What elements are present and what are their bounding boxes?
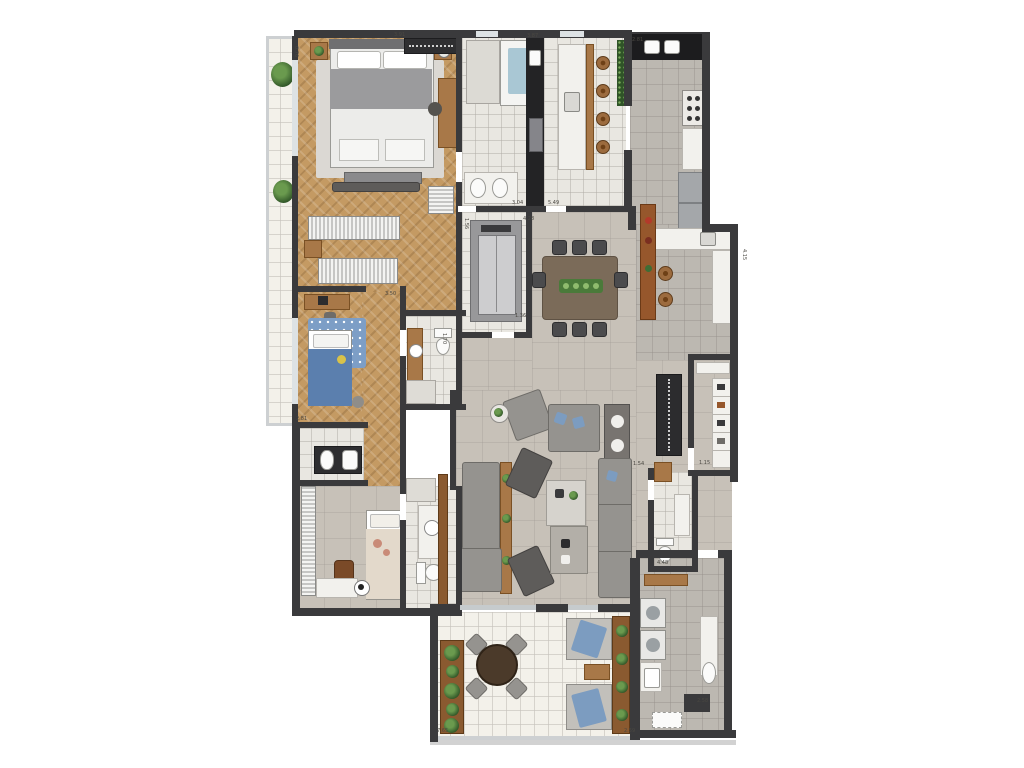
door-opening	[400, 330, 406, 356]
bedroom3-wardrobe	[301, 486, 316, 596]
bar-panel	[529, 118, 543, 152]
island-wood-edge	[586, 44, 594, 170]
bed-cushion	[385, 139, 425, 161]
closet-dresser	[304, 240, 322, 258]
bedroom3-bed	[366, 510, 402, 600]
wall	[294, 286, 366, 292]
planter-plant	[616, 709, 628, 721]
bed-throw	[330, 69, 432, 109]
laundry-mat	[652, 712, 682, 728]
balcony-outer-edge	[266, 36, 269, 426]
wall	[526, 212, 532, 338]
kids-cushion-yellow	[337, 355, 346, 364]
bar-stool	[596, 56, 610, 70]
dimension-label: 5.49	[548, 200, 559, 206]
bedroom3-desk	[316, 578, 358, 598]
dimension-label: 7.65	[437, 728, 448, 734]
wall	[648, 566, 698, 572]
planter-plant	[446, 665, 459, 678]
bath2-shower	[406, 380, 436, 404]
master-basin	[492, 178, 508, 198]
elevator-cab-door	[478, 235, 516, 315]
coffee-table-plant	[569, 491, 578, 500]
wall	[456, 486, 462, 612]
terrace-slider-glass	[460, 605, 536, 610]
door-opening	[458, 206, 476, 212]
master-basin	[470, 178, 486, 198]
buffet-bar	[640, 204, 656, 320]
daybed-towel	[571, 619, 608, 658]
door-opening	[546, 206, 566, 212]
pantry-item	[717, 420, 725, 426]
wall	[636, 550, 698, 558]
wall	[688, 360, 694, 448]
wardrobe-top-right	[404, 38, 458, 54]
burner	[687, 116, 692, 121]
speaker	[611, 439, 624, 452]
bedroom3-pillow	[370, 514, 400, 528]
bathbottom-wood-panel	[438, 474, 448, 608]
dimension-label: 1.54	[633, 461, 644, 467]
wall	[702, 32, 710, 230]
entry-console	[654, 462, 672, 482]
sofa-pillow-blue	[572, 416, 585, 429]
shelf-line	[713, 396, 730, 397]
daybed-side-table	[584, 664, 610, 680]
bedroom-desk	[438, 78, 458, 148]
wall	[624, 150, 632, 212]
bar-sink	[529, 50, 541, 66]
wall	[400, 286, 406, 488]
bedroom3-cushion-pink	[373, 539, 382, 548]
bar-stool	[596, 112, 610, 126]
dining-table	[542, 256, 618, 320]
wall	[294, 422, 368, 428]
balcony-window-glass	[292, 318, 298, 404]
terrace-round-table	[476, 644, 518, 686]
sofa-pillow-blue	[553, 411, 567, 425]
shelf-line	[713, 414, 730, 415]
bedroom3-cushion-pink	[383, 549, 390, 556]
closet-wardrobe	[308, 216, 400, 240]
planter-plant	[444, 683, 460, 699]
burner	[687, 96, 692, 101]
cooktop	[682, 90, 704, 126]
wall	[648, 500, 654, 572]
breakfast-stool	[658, 266, 673, 281]
bath2-basin	[409, 344, 423, 358]
shelf-line	[713, 432, 730, 433]
double-bed	[330, 40, 434, 168]
dining-chair	[614, 272, 628, 288]
pantry-item	[717, 384, 725, 390]
wall	[456, 310, 462, 410]
sofa-cushion-line	[599, 551, 631, 552]
wall	[688, 354, 738, 360]
table-plate	[583, 283, 589, 289]
dimension-label: 2.81	[632, 37, 643, 43]
laundry-shelf	[644, 574, 688, 586]
dimension-label: 4.48	[657, 560, 668, 566]
terrace-planter-left	[440, 640, 464, 734]
sofa-left	[462, 462, 500, 550]
console-plant	[502, 514, 511, 523]
dryer	[640, 630, 666, 660]
table-plate	[593, 283, 599, 289]
wall	[292, 608, 410, 616]
dining-chair	[552, 240, 567, 255]
dimension-label: 3.87	[527, 33, 538, 39]
kids-pillow	[313, 334, 349, 348]
planter-plant	[444, 645, 460, 661]
door-opening	[648, 480, 654, 500]
elevator-shaft	[470, 220, 522, 322]
wall	[630, 558, 640, 740]
counter-sink	[700, 232, 716, 246]
planter-plant	[616, 625, 628, 637]
bar-cabinet-wall	[526, 38, 544, 206]
hanger-rail	[668, 379, 670, 451]
island-sink	[564, 92, 580, 112]
speaker-cabinet	[604, 404, 630, 466]
dining-chair	[572, 322, 587, 337]
closet-wardrobe-vertical	[428, 186, 454, 214]
planter-plant	[616, 653, 628, 665]
dimension-label: 1.15	[699, 460, 710, 466]
bathbottom-shower	[406, 478, 436, 502]
coffee-table-low	[550, 526, 588, 574]
pantry-item	[717, 402, 725, 408]
dimension-label: 2.81	[296, 416, 307, 422]
wall	[456, 36, 462, 212]
dimension-label: 2.59	[624, 728, 635, 734]
burner	[695, 106, 700, 111]
dimension-label: 1.36	[515, 313, 526, 319]
door-opening	[698, 550, 718, 558]
window	[476, 31, 498, 37]
breakfast-stool	[658, 292, 673, 307]
dining-chair	[572, 240, 587, 255]
balcony-plant	[273, 180, 294, 203]
wall	[292, 424, 300, 616]
wall	[636, 730, 736, 738]
dimension-label: 3.91	[394, 32, 405, 38]
wall	[724, 558, 732, 738]
pantry-item	[717, 438, 725, 444]
planter-plant	[446, 703, 459, 716]
bedroom3-chair-seat	[358, 584, 364, 590]
bathleft-sink	[342, 450, 358, 470]
wall	[624, 36, 632, 106]
pantry-shelf-top	[696, 362, 730, 374]
kitchen-sink	[644, 40, 660, 54]
corridor-closet	[656, 374, 682, 456]
coffee-table-decor	[555, 489, 564, 498]
sofa-pillow-blue	[606, 470, 618, 482]
hallway-floor	[362, 292, 402, 508]
bar-stool	[596, 84, 610, 98]
bed-pillow	[337, 51, 381, 69]
tv-console-bedroom	[332, 182, 420, 192]
elevator-door-split	[496, 236, 497, 312]
door-opening	[400, 494, 406, 520]
dimension-label: 3.04	[512, 200, 523, 206]
coffee-table-decor	[561, 539, 570, 548]
pantry-shelf-unit	[712, 378, 731, 468]
coffee-table-decor	[561, 555, 570, 564]
sofa-top	[548, 404, 600, 452]
sofa-right	[598, 458, 632, 598]
table-plate	[573, 283, 579, 289]
fridge-split	[679, 202, 704, 204]
sofa-cushion-line	[599, 504, 631, 505]
dimension-label: 3.50	[385, 291, 396, 297]
powder-shelf	[674, 494, 690, 536]
burner	[695, 116, 700, 121]
dimension-label: 4.15	[741, 249, 747, 260]
wall	[294, 30, 464, 38]
wall	[540, 30, 632, 38]
laundry-sink	[644, 668, 660, 688]
dimension-label: 2.58	[697, 698, 708, 704]
bathleft-toilet	[320, 450, 334, 470]
coffee-table	[546, 480, 586, 526]
wall	[628, 206, 636, 230]
balcony-plant	[271, 62, 294, 87]
sofa-chaise	[458, 548, 502, 592]
nightstand-plant	[314, 46, 324, 56]
kitchen-sink	[664, 40, 680, 54]
washer	[640, 598, 666, 628]
door-opening	[456, 152, 462, 182]
window	[560, 31, 584, 37]
kids-laptop	[318, 296, 328, 305]
daybed-towel	[571, 688, 607, 728]
dining-chair	[592, 240, 607, 255]
kitchen-counter	[682, 128, 704, 170]
balcony-door-glass	[292, 60, 298, 156]
corridor-floor	[462, 334, 532, 396]
washer-door	[646, 606, 660, 620]
daybed	[566, 684, 612, 730]
burner	[695, 96, 700, 101]
door-opening	[688, 448, 694, 470]
planter-plant	[616, 681, 628, 693]
buffet-decor	[645, 265, 652, 272]
closet-wardrobe	[318, 258, 398, 284]
apartment-floor-plan: 0.763.913.872.813.045.494.281.563.501.70…	[0, 0, 1024, 768]
laundry-basin	[702, 662, 716, 684]
refrigerator	[678, 172, 705, 232]
kids-bed	[308, 330, 352, 406]
wall	[294, 480, 368, 486]
kitchen-right-counter-vertical	[712, 250, 732, 324]
wall	[718, 550, 732, 558]
dimension-label: 1.56	[463, 218, 469, 229]
master-shower	[466, 40, 500, 104]
dryer-door	[646, 638, 660, 652]
side-table-plant	[494, 408, 503, 417]
dimension-label: 1.70	[441, 333, 447, 344]
shelf-line	[713, 450, 730, 451]
powder-toilet-tank	[656, 538, 674, 546]
dining-chair	[552, 322, 567, 337]
daybed	[566, 618, 612, 660]
wall	[536, 604, 568, 612]
dimension-label: 4.28	[523, 216, 534, 222]
kids-pouf	[352, 396, 364, 408]
door-opening	[492, 332, 514, 338]
wall	[450, 390, 456, 490]
dining-chair	[592, 322, 607, 337]
terrace-slider-glass	[568, 605, 598, 610]
dimension-label: 0.76	[293, 46, 299, 57]
dining-chair	[532, 272, 546, 288]
slab-edge	[430, 740, 736, 745]
wall	[730, 224, 738, 482]
hanger-rail	[409, 45, 453, 47]
buffet-decor	[645, 237, 652, 244]
laundry-sink-unit	[640, 662, 662, 692]
burner	[687, 106, 692, 111]
bar-stool	[596, 140, 610, 154]
wall	[430, 608, 438, 742]
bedroom3-duvet	[366, 529, 402, 599]
desk-chair	[428, 102, 442, 116]
bed-cushion	[339, 139, 379, 161]
table-plate	[563, 283, 569, 289]
terrace-planter-right	[612, 616, 630, 734]
buffet-decor	[645, 217, 652, 224]
wall	[648, 468, 654, 480]
speaker	[611, 415, 624, 428]
elevator-panel	[481, 225, 511, 232]
wall	[598, 604, 634, 612]
